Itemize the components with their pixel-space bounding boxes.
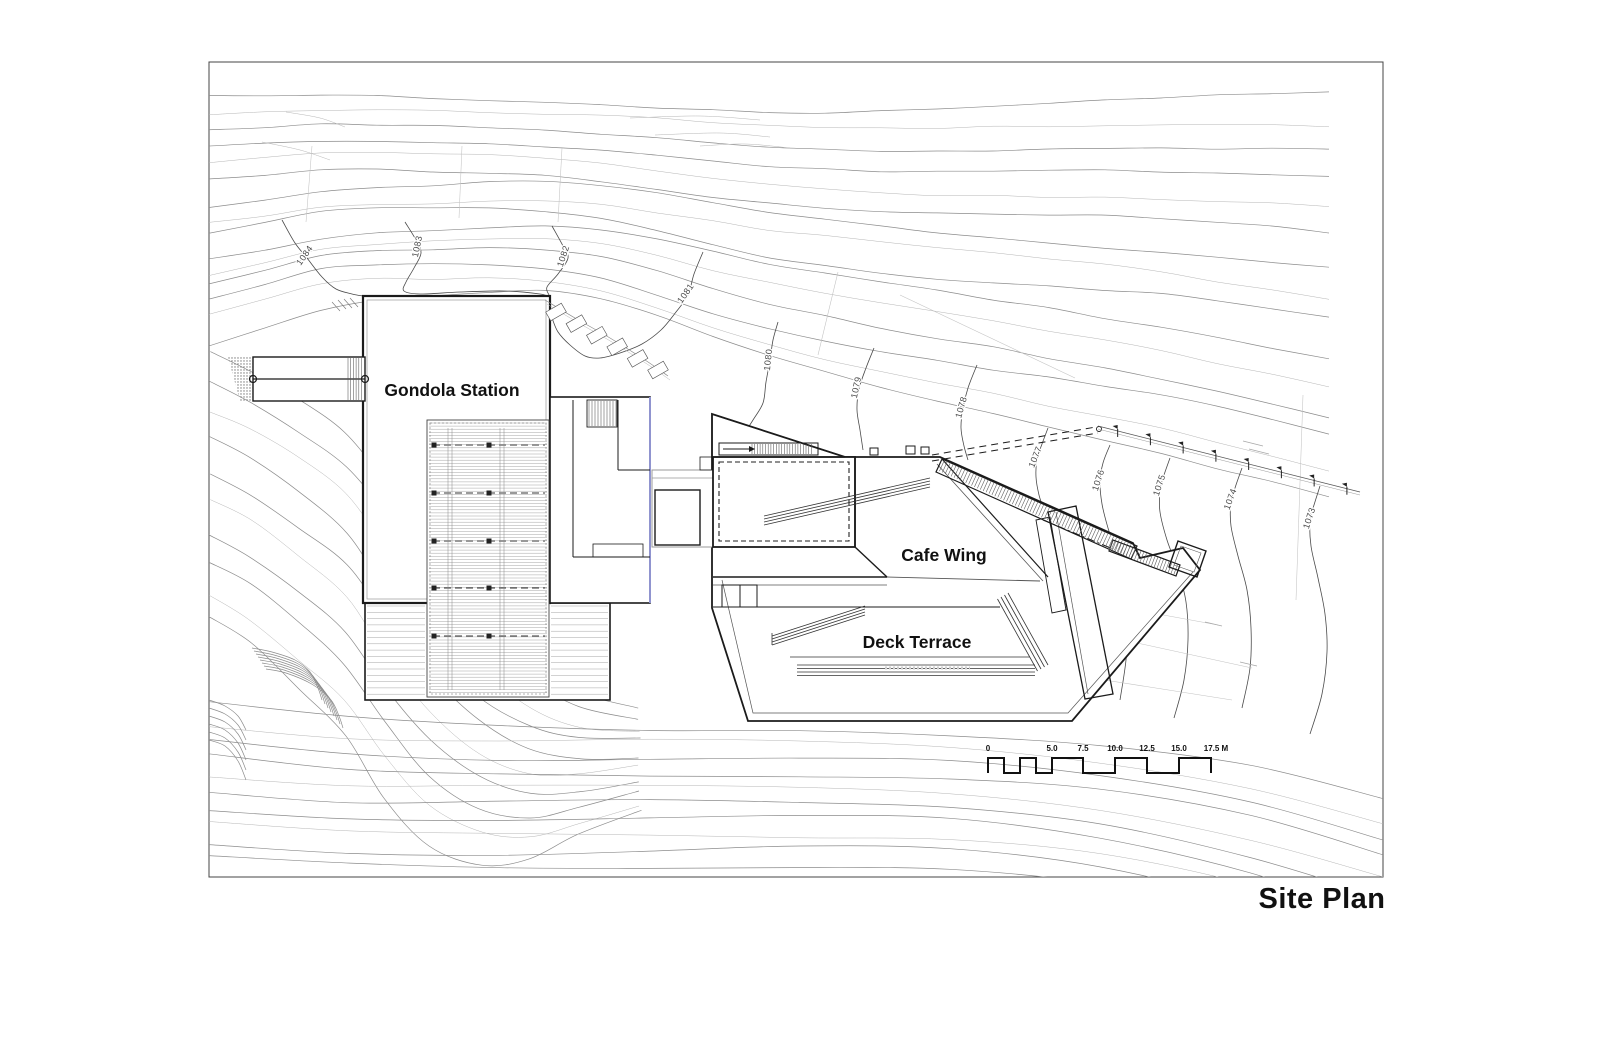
site-plan-drawing: 1084 1083 1082 1081 1080 1079 1078 1077 … [0,0,1600,1061]
scale-tick-0: 0 [986,744,991,753]
scale-tick-10: 10.0 [1107,744,1123,753]
gondola-station-label: Gondola Station [384,380,519,400]
link-corridor [652,470,713,547]
cafe-wing-label: Cafe Wing [901,545,986,565]
scale-tick-5: 5.0 [1046,744,1058,753]
scale-tick-12-5: 12.5 [1139,744,1155,753]
scale-tick-17-5: 17.5 M [1204,744,1229,753]
scale-tick-7-5: 7.5 [1077,744,1089,753]
cafe-roof-block [713,457,855,547]
station-annex [550,397,650,603]
deck-terrace-label: Deck Terrace [863,632,972,652]
page-title: Site Plan [1259,883,1386,915]
scale-tick-15: 15.0 [1171,744,1187,753]
